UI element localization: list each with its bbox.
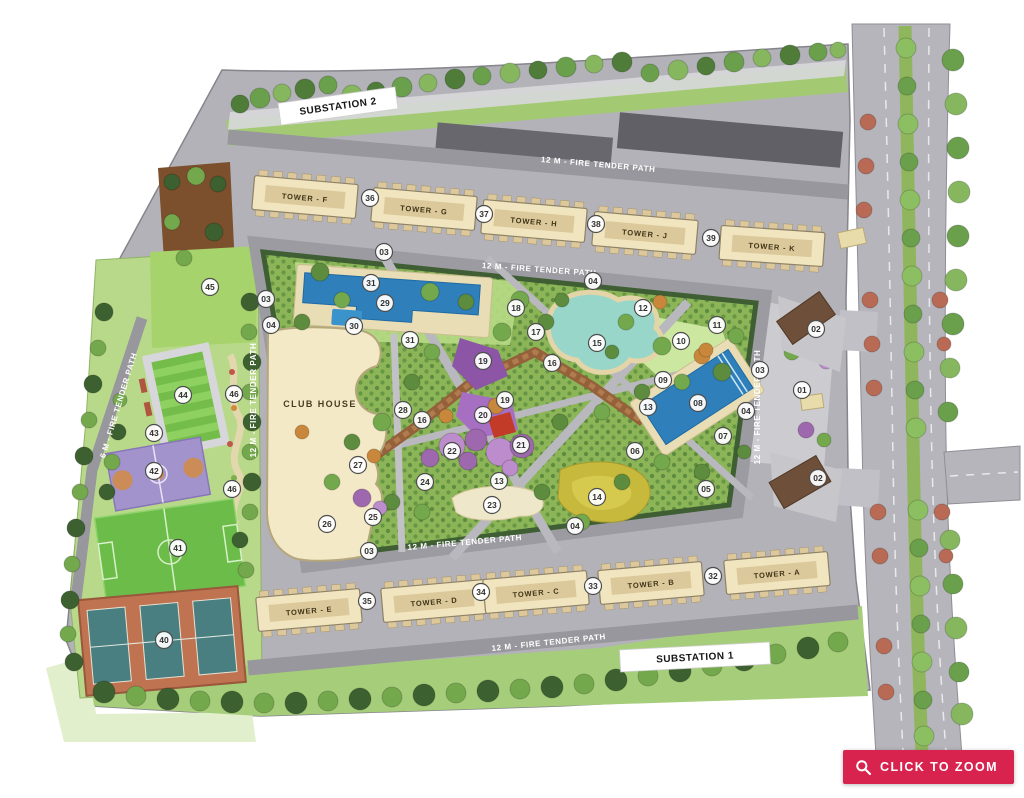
svg-text:10: 10 [676,336,686,346]
amenity-marker-39: 39 [703,230,720,247]
amenity-marker-05: 05 [698,481,715,498]
svg-text:03: 03 [755,365,765,375]
amenity-marker-33: 33 [585,578,602,595]
svg-text:19: 19 [500,395,510,405]
click-to-zoom-label: CLICK TO ZOOM [880,760,998,774]
amenity-marker-16: 16 [544,355,561,372]
amenity-marker-04: 04 [263,317,280,334]
svg-text:23: 23 [487,500,497,510]
svg-text:34: 34 [476,587,486,597]
amenity-marker-13: 13 [491,473,508,490]
amenity-marker-40: 40 [156,632,173,649]
svg-text:35: 35 [362,596,372,606]
amenity-marker-03: 03 [361,543,378,560]
amenity-marker-11: 11 [709,317,726,334]
svg-text:43: 43 [149,428,159,438]
amenity-marker-27: 27 [350,457,367,474]
svg-text:21: 21 [516,440,526,450]
svg-text:12: 12 [638,303,648,313]
svg-text:46: 46 [229,389,239,399]
svg-text:16: 16 [547,358,557,368]
svg-text:04: 04 [588,276,598,286]
club-house-label: CLUB HOUSE [283,399,357,409]
amenity-marker-06: 06 [627,443,644,460]
svg-text:11: 11 [713,320,722,330]
svg-text:19: 19 [478,356,488,366]
amenity-marker-04: 04 [567,518,584,535]
amenity-marker-37: 37 [476,206,493,223]
amenity-marker-38: 38 [588,216,605,233]
svg-text:17: 17 [531,327,541,337]
svg-text:02: 02 [813,473,823,483]
amenity-marker-12: 12 [635,300,652,317]
amenity-marker-02: 02 [810,470,827,487]
svg-text:02: 02 [811,324,821,334]
amenity-marker-21: 21 [513,437,530,454]
svg-text:04: 04 [570,521,580,531]
amenity-marker-02: 02 [808,321,825,338]
amenity-marker-35: 35 [359,593,376,610]
amenity-marker-17: 17 [528,324,545,341]
svg-text:39: 39 [706,233,716,243]
fire-tender-path-label: 12 M - FIRE TENDER PATH [249,343,258,458]
amenity-marker-31: 31 [402,332,419,349]
svg-text:13: 13 [494,476,504,486]
amenity-marker-22: 22 [444,443,461,460]
svg-text:03: 03 [261,294,271,304]
amenity-marker-36: 36 [362,190,379,207]
amenity-marker-46: 46 [224,481,241,498]
amenity-marker-04: 04 [585,273,602,290]
svg-text:36: 36 [365,193,375,203]
svg-text:18: 18 [511,303,521,313]
amenity-marker-32: 32 [705,568,722,585]
amenity-marker-09: 09 [655,372,672,389]
svg-text:13: 13 [643,402,653,412]
amenity-marker-29: 29 [377,295,394,312]
svg-text:30: 30 [349,321,359,331]
magnifier-icon [855,759,872,776]
amenity-marker-18: 18 [508,300,525,317]
site-plan-page: TOWER - FTOWER - GTOWER - HTOWER - JTOWE… [0,0,1024,798]
click-to-zoom-button[interactable]: CLICK TO ZOOM [843,750,1014,784]
amenity-marker-03: 03 [258,291,275,308]
svg-text:33: 33 [588,581,598,591]
amenity-marker-44: 44 [175,387,192,404]
svg-text:07: 07 [718,431,728,441]
svg-text:05: 05 [701,484,711,494]
amenity-marker-41: 41 [170,540,187,557]
amenity-marker-19: 19 [475,353,492,370]
amenity-marker-03: 03 [376,244,393,261]
amenity-marker-26: 26 [319,516,336,533]
amenity-marker-07: 07 [715,428,732,445]
svg-text:46: 46 [227,484,237,494]
amenity-marker-08: 08 [690,395,707,412]
svg-text:15: 15 [592,338,602,348]
amenity-marker-13: 13 [640,399,657,416]
svg-text:16: 16 [417,415,427,425]
amenity-marker-16: 16 [414,412,431,429]
amenity-marker-23: 23 [484,497,501,514]
svg-text:38: 38 [591,219,601,229]
svg-text:42: 42 [149,466,159,476]
amenity-marker-43: 43 [146,425,163,442]
amenity-marker-20: 20 [475,407,492,424]
svg-text:44: 44 [178,390,188,400]
svg-text:06: 06 [630,446,640,456]
svg-text:28: 28 [398,405,408,415]
amenity-marker-31: 31 [363,275,380,292]
svg-text:31: 31 [366,278,376,288]
amenity-marker-14: 14 [589,489,606,506]
svg-text:09: 09 [658,375,668,385]
svg-text:08: 08 [693,398,703,408]
svg-text:41: 41 [173,543,183,553]
svg-text:03: 03 [379,247,389,257]
svg-text:31: 31 [405,335,415,345]
amenity-marker-25: 25 [365,509,382,526]
amenity-marker-03: 03 [752,362,769,379]
amenity-marker-01: 01 [794,382,811,399]
svg-text:14: 14 [592,492,602,502]
svg-text:40: 40 [159,635,169,645]
svg-text:04: 04 [266,320,276,330]
svg-text:32: 32 [708,571,718,581]
svg-text:37: 37 [479,209,489,219]
amenity-marker-04: 04 [738,403,755,420]
site-plan-map[interactable]: TOWER - FTOWER - GTOWER - HTOWER - JTOWE… [0,0,1024,798]
svg-text:26: 26 [322,519,332,529]
amenity-marker-10: 10 [673,333,690,350]
svg-text:04: 04 [741,406,751,416]
amenity-marker-30: 30 [346,318,363,335]
amenity-marker-15: 15 [589,335,606,352]
svg-text:27: 27 [353,460,363,470]
amenity-marker-28: 28 [395,402,412,419]
amenity-marker-24: 24 [417,474,434,491]
svg-text:24: 24 [420,477,430,487]
svg-text:45: 45 [205,282,215,292]
svg-text:20: 20 [478,410,488,420]
svg-text:03: 03 [364,546,374,556]
svg-text:01: 01 [797,385,807,395]
svg-text:22: 22 [447,446,457,456]
amenity-marker-34: 34 [473,584,490,601]
south-entry-drive [836,468,880,508]
amenity-marker-45: 45 [202,279,219,296]
svg-text:29: 29 [380,298,390,308]
amenity-marker-42: 42 [146,463,163,480]
amenity-marker-46: 46 [226,386,243,403]
amenity-marker-19: 19 [497,392,514,409]
svg-text:25: 25 [368,512,378,522]
